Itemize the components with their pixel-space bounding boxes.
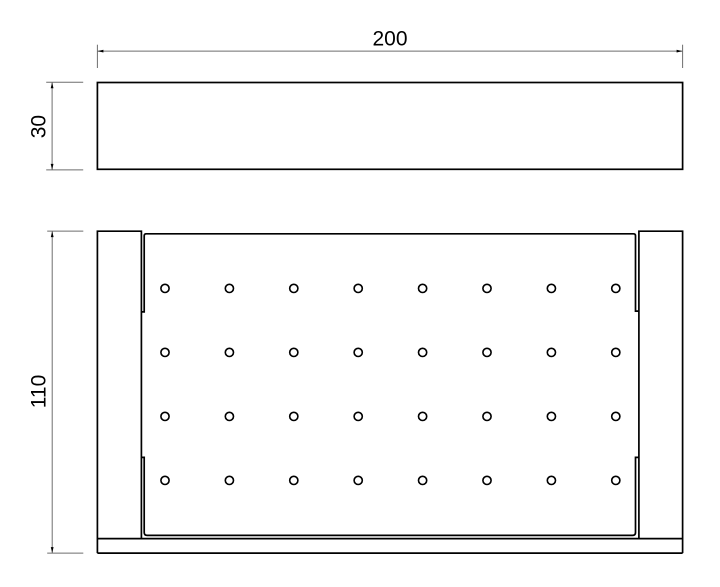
- svg-text:30: 30: [28, 115, 51, 138]
- svg-text:200: 200: [372, 28, 407, 51]
- svg-text:110: 110: [27, 375, 50, 408]
